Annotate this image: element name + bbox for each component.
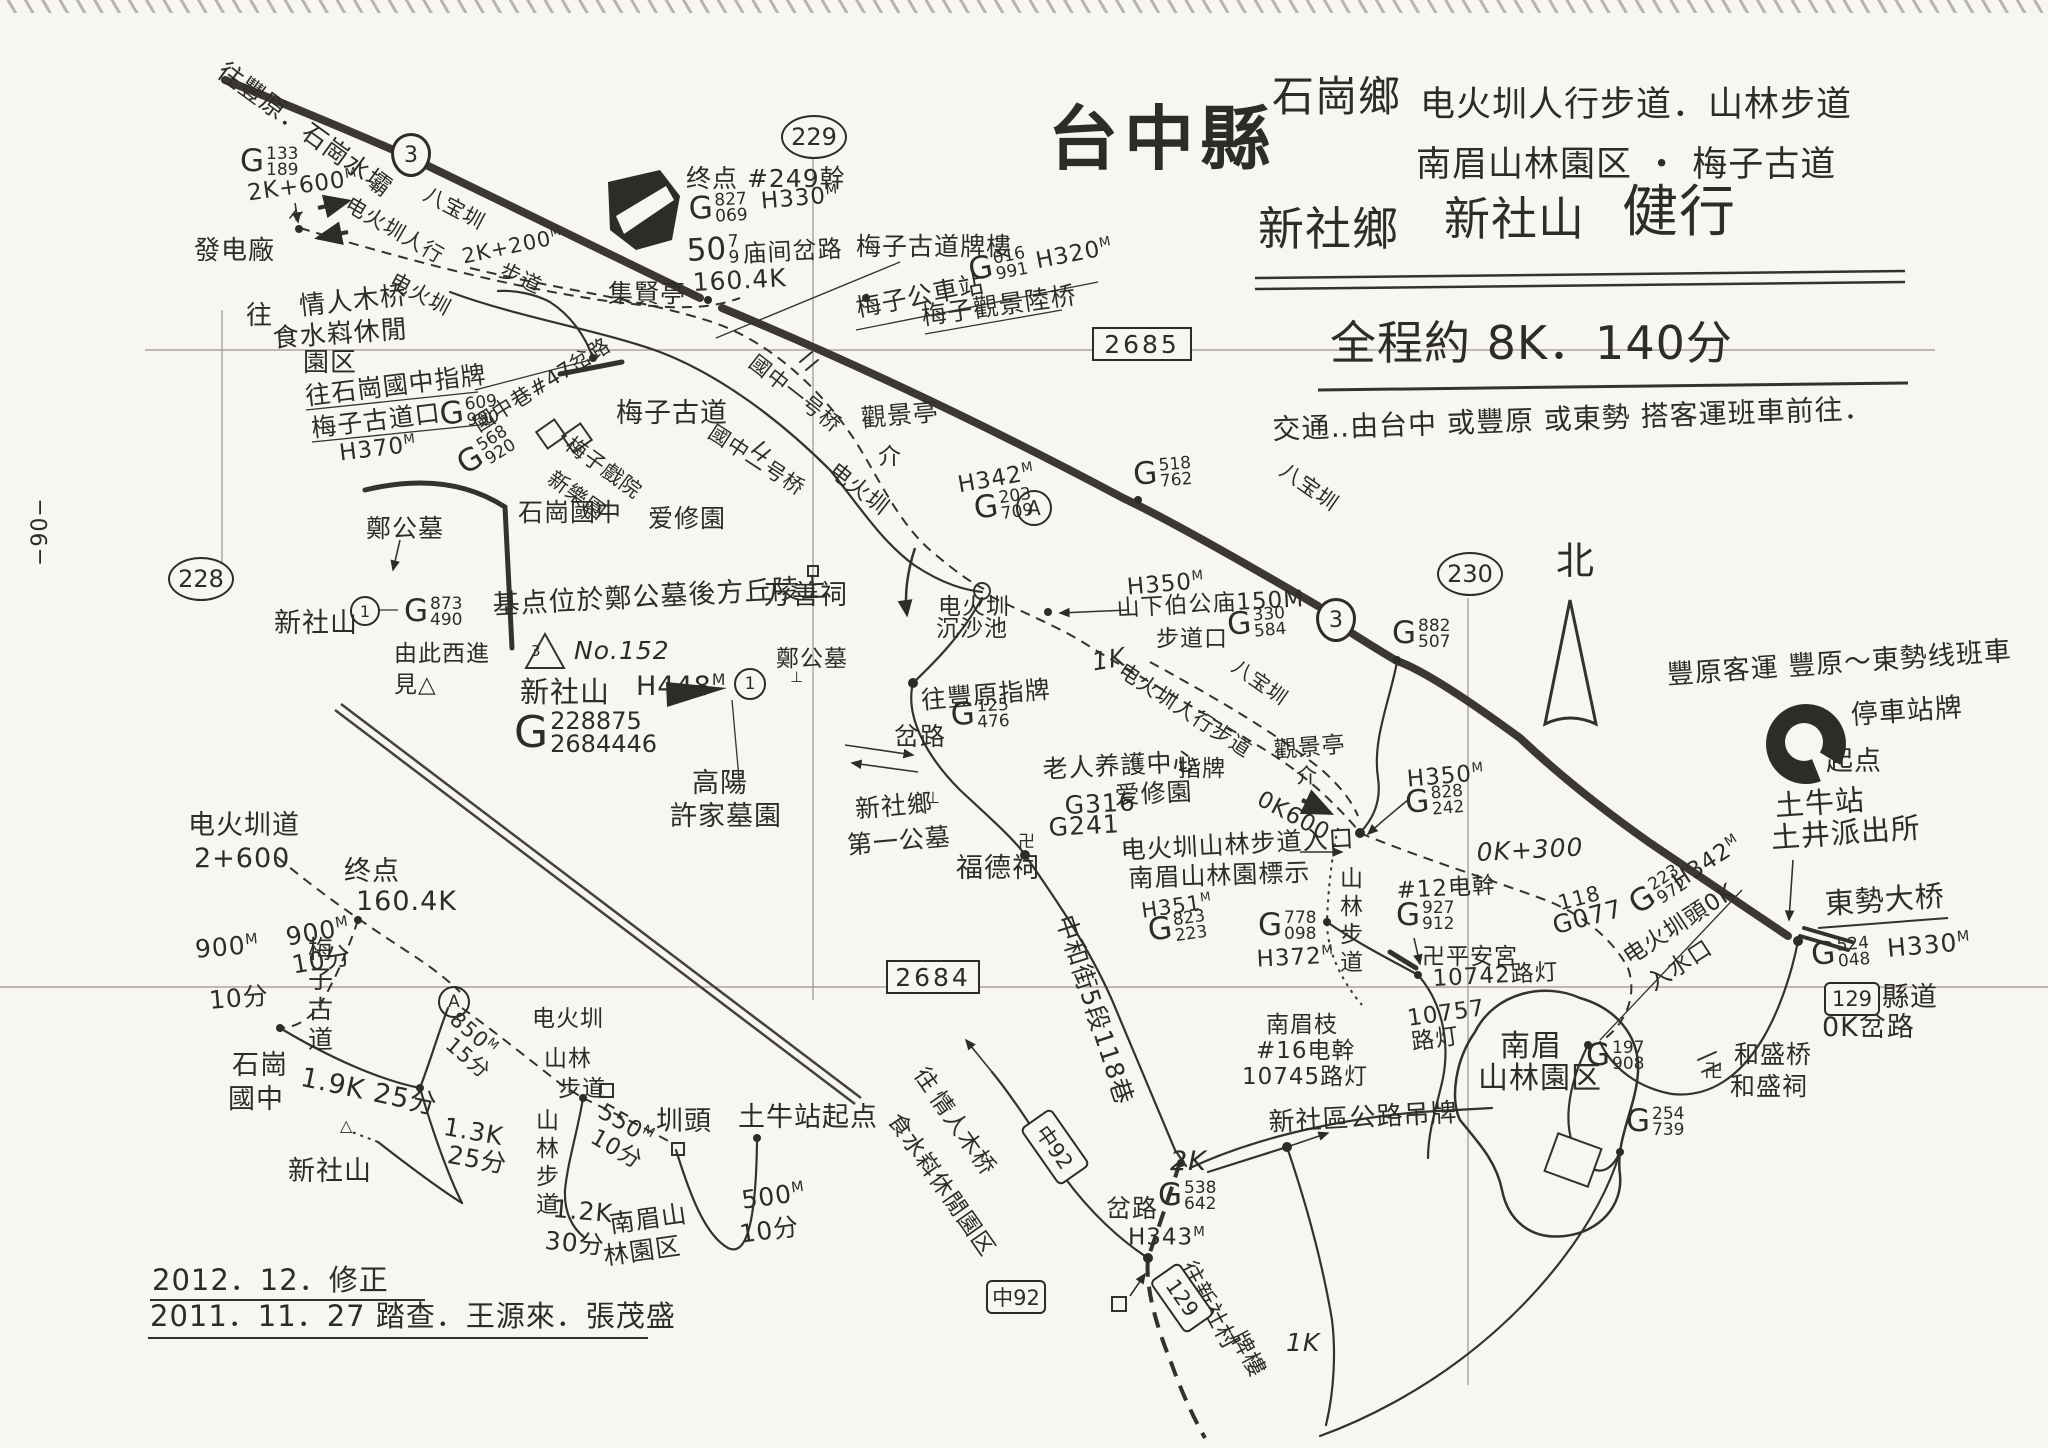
map-label: △ bbox=[340, 1118, 353, 1134]
map-label: ⊥ bbox=[790, 670, 804, 685]
gnum-prefix: G bbox=[240, 147, 264, 176]
unit-superscript: M bbox=[1321, 943, 1334, 959]
label-text: 沉沙池 bbox=[936, 616, 1008, 642]
map-label: 介 bbox=[1296, 766, 1318, 787]
map-label: 爱修園 bbox=[1114, 779, 1193, 809]
label-text: 庙间岔路 bbox=[742, 235, 843, 268]
gnum-prefix: G bbox=[1626, 1107, 1650, 1136]
map-label: 新社鄉 bbox=[854, 790, 934, 822]
label-text: 新社山 bbox=[520, 675, 610, 709]
map-label: 見△ bbox=[394, 674, 437, 697]
map-label: 南眉 bbox=[1500, 1032, 1562, 1063]
gnum-prefix: G bbox=[514, 712, 548, 754]
map-label: 新社鄉 bbox=[1258, 206, 1399, 253]
map-label: 庙间岔路 bbox=[742, 237, 843, 267]
map-label: H448M bbox=[636, 672, 726, 701]
label-text: 爱修園 bbox=[648, 504, 726, 533]
map-label: 福德祠 bbox=[956, 855, 1040, 883]
map-label: 山林 bbox=[544, 1048, 592, 1071]
label-text: 终点 bbox=[344, 856, 400, 887]
map-label: 南眉枝 bbox=[1266, 1014, 1338, 1037]
road-number-shield: 129 bbox=[1824, 982, 1880, 1016]
map-label: 2+600 bbox=[194, 845, 290, 873]
map-label: 卍 bbox=[1704, 1062, 1724, 1081]
label-text: 卍 bbox=[1704, 1060, 1724, 1082]
gnum-stack: 330584 bbox=[1252, 605, 1287, 640]
hand-drawn-hiking-map: 台中縣石崗鄉电火圳人行步道．山林步道南眉山林園区 ・ 梅子古道新社鄉新社山健行全… bbox=[0, 0, 2048, 1448]
unit-superscript: M bbox=[1020, 460, 1035, 477]
label-text: 电火圳道 bbox=[188, 810, 300, 841]
map-label: 由此西進 bbox=[394, 643, 490, 666]
map-label: 石崗 bbox=[232, 1052, 288, 1080]
label-text: 北 bbox=[1556, 539, 1595, 583]
gnum-prefix: G bbox=[1392, 619, 1416, 648]
label-text: 电火圳人行步道．山林步道 bbox=[1420, 85, 1852, 125]
map-label: 鄭公墓 bbox=[366, 516, 444, 542]
map-label: 許家墓園 bbox=[670, 803, 782, 831]
label-text: 电火圳 bbox=[532, 1006, 604, 1032]
label-text: 0K岔路 bbox=[1822, 1012, 1915, 1043]
grid-reference-oval: 229 bbox=[781, 115, 847, 159]
label-text: △ bbox=[340, 1116, 353, 1135]
gps-number-marker: G873490 bbox=[404, 596, 462, 628]
map-label: 縣道 bbox=[1882, 984, 1938, 1012]
gnum-bottom: 069 bbox=[715, 207, 748, 225]
waypoint-dots bbox=[276, 225, 1803, 1263]
gnum-bottom: 223 bbox=[1174, 924, 1208, 945]
map-label: 0K+300 bbox=[1476, 834, 1584, 865]
label-text: 山林步道 bbox=[1335, 866, 1361, 978]
unit-superscript: M bbox=[1956, 928, 1971, 945]
gnum-prefix: G bbox=[972, 492, 1000, 524]
map-label: 停車站牌 bbox=[1850, 694, 1964, 729]
label-text: 石崗鄉 bbox=[1272, 72, 1401, 121]
gnum-stack: 828242 bbox=[1430, 783, 1465, 818]
map-label: 160.4K bbox=[692, 265, 787, 295]
revision-date: 2012．12．修正 bbox=[152, 1266, 389, 1296]
map-label: 电火圳 bbox=[532, 1008, 604, 1031]
circled-point-marker: A bbox=[438, 986, 470, 1018]
label-text: 圳頭 bbox=[656, 1106, 712, 1137]
gnum-prefix: G bbox=[950, 700, 976, 731]
map-label: ⊥ bbox=[926, 790, 941, 806]
map-label: 岔路 bbox=[894, 724, 946, 750]
map-label: 160.4K bbox=[356, 888, 457, 916]
label-text: 0K+300 bbox=[1476, 832, 1584, 867]
label-text: 1.2K bbox=[552, 1194, 614, 1228]
map-label: 和盛祠 bbox=[1730, 1074, 1808, 1100]
map-label: 國中 bbox=[228, 1086, 284, 1114]
map-label: 發电廠 bbox=[194, 238, 275, 265]
label-text: 160.4K bbox=[692, 263, 787, 297]
map-label: 圳頭 bbox=[656, 1108, 712, 1136]
gnum-bottom: 098 bbox=[1284, 926, 1316, 942]
label-text: 鄭公墓 bbox=[366, 514, 444, 543]
gnum-bottom: 912 bbox=[1422, 916, 1454, 932]
label-text: 由此西進 bbox=[394, 641, 490, 667]
gnum-stack: 79 bbox=[727, 233, 740, 266]
map-label: 步道口 bbox=[1156, 628, 1228, 651]
label-text: 介 bbox=[1296, 764, 1318, 788]
gnum-prefix: G bbox=[688, 194, 714, 225]
survey-credit: 2011．11．27 踏查．王源來．張茂盛 bbox=[150, 1302, 676, 1332]
grid-reference-box: 2685 bbox=[1092, 327, 1192, 361]
map-label: 山林園区 bbox=[1478, 1064, 1602, 1095]
label-text: G241 bbox=[1048, 809, 1121, 842]
gnum-stack: 827069 bbox=[714, 191, 748, 225]
gnum-prefix: G bbox=[1586, 1041, 1610, 1070]
gnum-stack: 873490 bbox=[430, 596, 462, 628]
gps-number-marker: G518762 bbox=[1132, 455, 1193, 492]
gnum-stack: 524048 bbox=[1836, 935, 1871, 970]
map-label: 新社山 bbox=[1444, 196, 1585, 243]
label-text: 鄭公墓 bbox=[776, 646, 848, 672]
unit-superscript: M bbox=[790, 1179, 806, 1197]
label-text: 和盛祠 bbox=[1730, 1072, 1808, 1101]
gnum-stack: 2288752684446 bbox=[550, 710, 657, 756]
label-text: 南眉枝 bbox=[1266, 1012, 1338, 1038]
map-label: 鄭公墓 bbox=[776, 648, 848, 671]
label-text: 卍 bbox=[1018, 832, 1036, 852]
gnum-stack: 882507 bbox=[1418, 618, 1450, 650]
gnum-prefix: G bbox=[1404, 787, 1431, 818]
label-text: 土牛站起点 bbox=[738, 1102, 878, 1133]
map-label: 终点 bbox=[344, 858, 400, 886]
gnum-stack: 538642 bbox=[1184, 1180, 1216, 1212]
unit-superscript: M bbox=[1199, 889, 1212, 904]
map-label: 10分 bbox=[208, 983, 270, 1014]
gnum-bottom: 048 bbox=[1837, 951, 1871, 970]
label-text: 山林園区 bbox=[1478, 1061, 1602, 1096]
map-label: 新社山 bbox=[520, 678, 610, 708]
map-label: 梅子古道 bbox=[616, 400, 728, 428]
road-number-shield: 中92 bbox=[986, 1280, 1046, 1314]
gnum-bottom: 762 bbox=[1159, 471, 1193, 490]
label-text: 新社山 bbox=[274, 608, 358, 639]
map-label: 新社山 bbox=[274, 610, 358, 638]
gnum-prefix: G bbox=[1158, 1181, 1182, 1210]
grid-reference-oval: 228 bbox=[168, 557, 234, 601]
label-text: 集賢亭 bbox=[608, 279, 686, 308]
gps-number-marker: G778098 bbox=[1258, 910, 1316, 942]
label-text: 園区 bbox=[303, 348, 357, 378]
unit-superscript: M bbox=[403, 432, 417, 448]
gnum-prefix: G bbox=[966, 253, 995, 286]
gnum-stack: 927912 bbox=[1422, 900, 1454, 932]
label-text: 往 bbox=[246, 301, 273, 331]
label-text: 新社山 bbox=[1444, 192, 1585, 246]
map-label: H372M bbox=[1256, 944, 1335, 972]
gnum-bottom: 739 bbox=[1652, 1122, 1684, 1138]
label-text: 10745路灯 bbox=[1242, 1064, 1368, 1090]
label-text: 3 bbox=[531, 642, 542, 660]
label-text: H330 bbox=[1886, 928, 1959, 963]
label-text: 900 bbox=[194, 931, 247, 964]
label-text: 發电廠 bbox=[194, 236, 275, 266]
circled-point-marker: A bbox=[1016, 490, 1052, 526]
gps-number-marker: G882507 bbox=[1392, 618, 1450, 650]
map-label: 步道 bbox=[558, 1078, 606, 1101]
gnum-prefix: G bbox=[1146, 914, 1174, 946]
label-text: 10分 bbox=[208, 981, 270, 1015]
label-text: ⊥ bbox=[926, 788, 941, 807]
label-text: 2K bbox=[1170, 1146, 1207, 1177]
map-label: 起点 bbox=[1826, 748, 1882, 776]
gnum-bottom: 507 bbox=[1418, 634, 1450, 650]
circled-point-marker: 1 bbox=[734, 668, 766, 700]
unit-superscript: M bbox=[1471, 760, 1485, 776]
map-label: 山林步道 bbox=[532, 1108, 555, 1220]
unit-superscript: M bbox=[344, 166, 358, 183]
label-text: 全程約 8K．140分 bbox=[1330, 316, 1733, 370]
label-text: 南眉 bbox=[1500, 1029, 1562, 1064]
gnum-stack: 518762 bbox=[1158, 455, 1193, 490]
map-label: H330M bbox=[1886, 929, 1972, 962]
label-text: 岔路 bbox=[1106, 1194, 1158, 1223]
gps-number-marker: 5079 bbox=[686, 233, 740, 268]
gps-number-marker: G524048 bbox=[1810, 935, 1871, 972]
label-text: 台中縣 bbox=[1048, 98, 1276, 180]
gnum-stack: 016991 bbox=[992, 245, 1030, 283]
label-text: 岔路 bbox=[894, 722, 946, 751]
map-label: G241 bbox=[1048, 811, 1120, 840]
gnum-stack: 197908 bbox=[1612, 1040, 1644, 1072]
label-text: 30分 bbox=[544, 1226, 606, 1260]
gps-number-marker: G828242 bbox=[1404, 783, 1465, 820]
label-text: 万善祠 bbox=[764, 580, 848, 611]
map-label: 3 bbox=[531, 644, 542, 659]
gnum-bottom: 490 bbox=[430, 612, 462, 628]
map-label: 10745路灯 bbox=[1242, 1066, 1368, 1089]
label-text: 梅子古道 bbox=[616, 398, 728, 429]
label-text: 步道口 bbox=[1156, 626, 1228, 652]
map-title: 台中縣 bbox=[1048, 104, 1276, 175]
map-label: 岔路 bbox=[1106, 1196, 1158, 1222]
label-text: H448 bbox=[636, 671, 712, 702]
gps-number-marker: G827069 bbox=[688, 191, 748, 226]
label-text: −90− bbox=[28, 497, 53, 566]
gnum-bottom: 9 bbox=[728, 249, 740, 266]
map-label: 石崗鄉 bbox=[1272, 76, 1401, 119]
map-linework bbox=[0, 0, 2048, 1448]
gnum-stack: 133189 bbox=[266, 146, 298, 178]
map-label: 0K岔路 bbox=[1822, 1014, 1915, 1042]
label-text: 健行 bbox=[1622, 180, 1736, 245]
map-label: 新社山 bbox=[288, 1158, 372, 1186]
gnum-prefix: G bbox=[1396, 901, 1420, 930]
label-text: 南眉山林園区 ・ 梅子古道 bbox=[1416, 145, 1836, 185]
gps-number-marker: G538642 bbox=[1158, 1180, 1216, 1212]
gnum-bottom: 189 bbox=[266, 162, 298, 178]
gps-number-marker: G2288752684446 bbox=[514, 710, 657, 756]
map-label: 1.2K bbox=[552, 1196, 614, 1227]
north-arrow-icon bbox=[1545, 600, 1596, 724]
label-text: 爱修園 bbox=[1114, 777, 1193, 810]
label-text: #16电幹 bbox=[1256, 1038, 1356, 1064]
label-text: 介 bbox=[878, 444, 902, 470]
map-label: 介 bbox=[878, 446, 902, 469]
map-label: #16电幹 bbox=[1256, 1040, 1356, 1063]
map-label: 集賢亭 bbox=[608, 281, 686, 307]
map-label: 30分 bbox=[544, 1228, 606, 1259]
map-label: 1K bbox=[1286, 1330, 1320, 1356]
label-text: 縣道 bbox=[1882, 982, 1938, 1013]
map-label: 山林步道 bbox=[1336, 866, 1359, 978]
circled-point-marker: 1 bbox=[350, 596, 380, 626]
unit-superscript: M bbox=[712, 670, 727, 689]
map-label: 电火圳道 bbox=[188, 812, 300, 840]
map-label: 沉沙池 bbox=[936, 618, 1008, 641]
gnum-prefix: G bbox=[438, 398, 465, 430]
label-text: 新社鄉 bbox=[1258, 202, 1399, 256]
park-building-icon bbox=[1545, 1133, 1602, 1186]
label-text: 步道 bbox=[558, 1076, 606, 1102]
gps-number-marker: G823223 bbox=[1146, 908, 1208, 948]
gps-number-marker: G133189 bbox=[240, 146, 298, 178]
gps-number-marker: G254739 bbox=[1626, 1106, 1684, 1138]
label-text: 和盛桥 bbox=[1734, 1040, 1812, 1069]
label-text: 石崗 bbox=[232, 1050, 288, 1081]
label-text: No.152 bbox=[574, 636, 670, 665]
unit-superscript: M bbox=[1191, 568, 1205, 584]
map-label: 梅子古道 bbox=[306, 936, 332, 1056]
gnum-prefix: G bbox=[1226, 609, 1253, 640]
gps-number-marker: G197908 bbox=[1586, 1040, 1644, 1072]
label-text: 160.4K bbox=[356, 886, 457, 917]
gnum-bottom: 584 bbox=[1253, 621, 1287, 640]
unit-superscript: M bbox=[1098, 234, 1113, 251]
map-label: No.152 bbox=[574, 638, 670, 664]
map-label: 卍 bbox=[1018, 834, 1036, 851]
unit-superscript: M bbox=[1193, 1225, 1206, 1240]
gnum-prefix: 50 bbox=[686, 235, 727, 266]
gnum-prefix: G bbox=[1258, 911, 1282, 940]
grid-reference-box: 2684 bbox=[886, 960, 980, 994]
map-label: 万善祠 bbox=[764, 582, 848, 610]
map-label: 2K bbox=[1170, 1148, 1207, 1176]
map-label: 电火圳人行步道．山林步道 bbox=[1420, 88, 1852, 124]
gps-number-marker: G330584 bbox=[1226, 605, 1287, 642]
gnum-bottom: 642 bbox=[1184, 1196, 1216, 1212]
grid-reference-oval: 230 bbox=[1437, 552, 1503, 596]
route-summary: 全程約 8K．140分 bbox=[1330, 320, 1733, 367]
map-label: 土牛站起点 bbox=[738, 1104, 878, 1132]
label-text: 2011．11．27 踏查．王源來．張茂盛 bbox=[150, 1299, 676, 1333]
gnum-stack: 125476 bbox=[976, 697, 1010, 731]
label-text: 1K bbox=[1286, 1328, 1320, 1357]
map-label: 南眉山林園標示 bbox=[1128, 860, 1311, 892]
terminus-block-icon bbox=[608, 170, 680, 250]
label-text: 高陽 bbox=[692, 768, 748, 799]
unit-superscript: M bbox=[825, 182, 839, 198]
map-label: 和盛桥 bbox=[1734, 1042, 1812, 1068]
label-text: 2+600 bbox=[194, 843, 290, 874]
gnum-prefix: G bbox=[1810, 939, 1837, 970]
label-text: 許家墓園 bbox=[670, 801, 782, 832]
map-label: 觀景亭 bbox=[860, 399, 940, 431]
unit-superscript: M bbox=[334, 914, 350, 932]
north-label: 北 bbox=[1556, 542, 1595, 581]
gnum-bottom: 908 bbox=[1612, 1056, 1644, 1072]
label-text: H343 bbox=[1128, 1225, 1193, 1251]
gnum-bottom: 476 bbox=[977, 713, 1010, 731]
map-label: 園区 bbox=[303, 350, 357, 377]
label-text: 起点 bbox=[1826, 746, 1882, 777]
label-text: ⊥ bbox=[790, 668, 804, 686]
label-text: 2012．12．修正 bbox=[152, 1263, 389, 1297]
gnum-stack: 823223 bbox=[1172, 908, 1209, 944]
gnum-stack: 254739 bbox=[1652, 1106, 1684, 1138]
label-text: 國中 bbox=[228, 1084, 284, 1115]
map-label: 爱修園 bbox=[648, 506, 726, 532]
page-number: −90− bbox=[30, 497, 52, 566]
map-label: 健行 bbox=[1622, 184, 1736, 241]
map-label: 南眉山林園区 ・ 梅子古道 bbox=[1416, 148, 1836, 184]
label-text: 山林 bbox=[544, 1046, 592, 1072]
map-label: 高陽 bbox=[692, 770, 748, 798]
gps-number-marker: G927912 bbox=[1396, 900, 1454, 932]
nanmei-forest-park-outline bbox=[1455, 991, 1638, 1237]
label-text: 見△ bbox=[394, 672, 437, 698]
gnum-bottom: 242 bbox=[1431, 799, 1465, 818]
label-text: 梅子古道 bbox=[305, 936, 334, 1056]
map-label: 往 bbox=[246, 303, 273, 330]
map-label: H343M bbox=[1128, 1226, 1206, 1250]
map-label: 東勢大桥 bbox=[1824, 882, 1946, 920]
gnum-prefix: G bbox=[1132, 459, 1159, 490]
label-text: 福德祠 bbox=[956, 853, 1040, 884]
unit-superscript: M bbox=[244, 931, 259, 948]
gps-number-marker: G125476 bbox=[950, 697, 1010, 732]
label-text: H372 bbox=[1256, 943, 1322, 972]
gnum-bottom: 2684446 bbox=[550, 733, 657, 756]
gnum-prefix: G bbox=[404, 597, 428, 626]
label-text: 新社山 bbox=[288, 1156, 372, 1187]
gnum-stack: 778098 bbox=[1284, 910, 1316, 942]
